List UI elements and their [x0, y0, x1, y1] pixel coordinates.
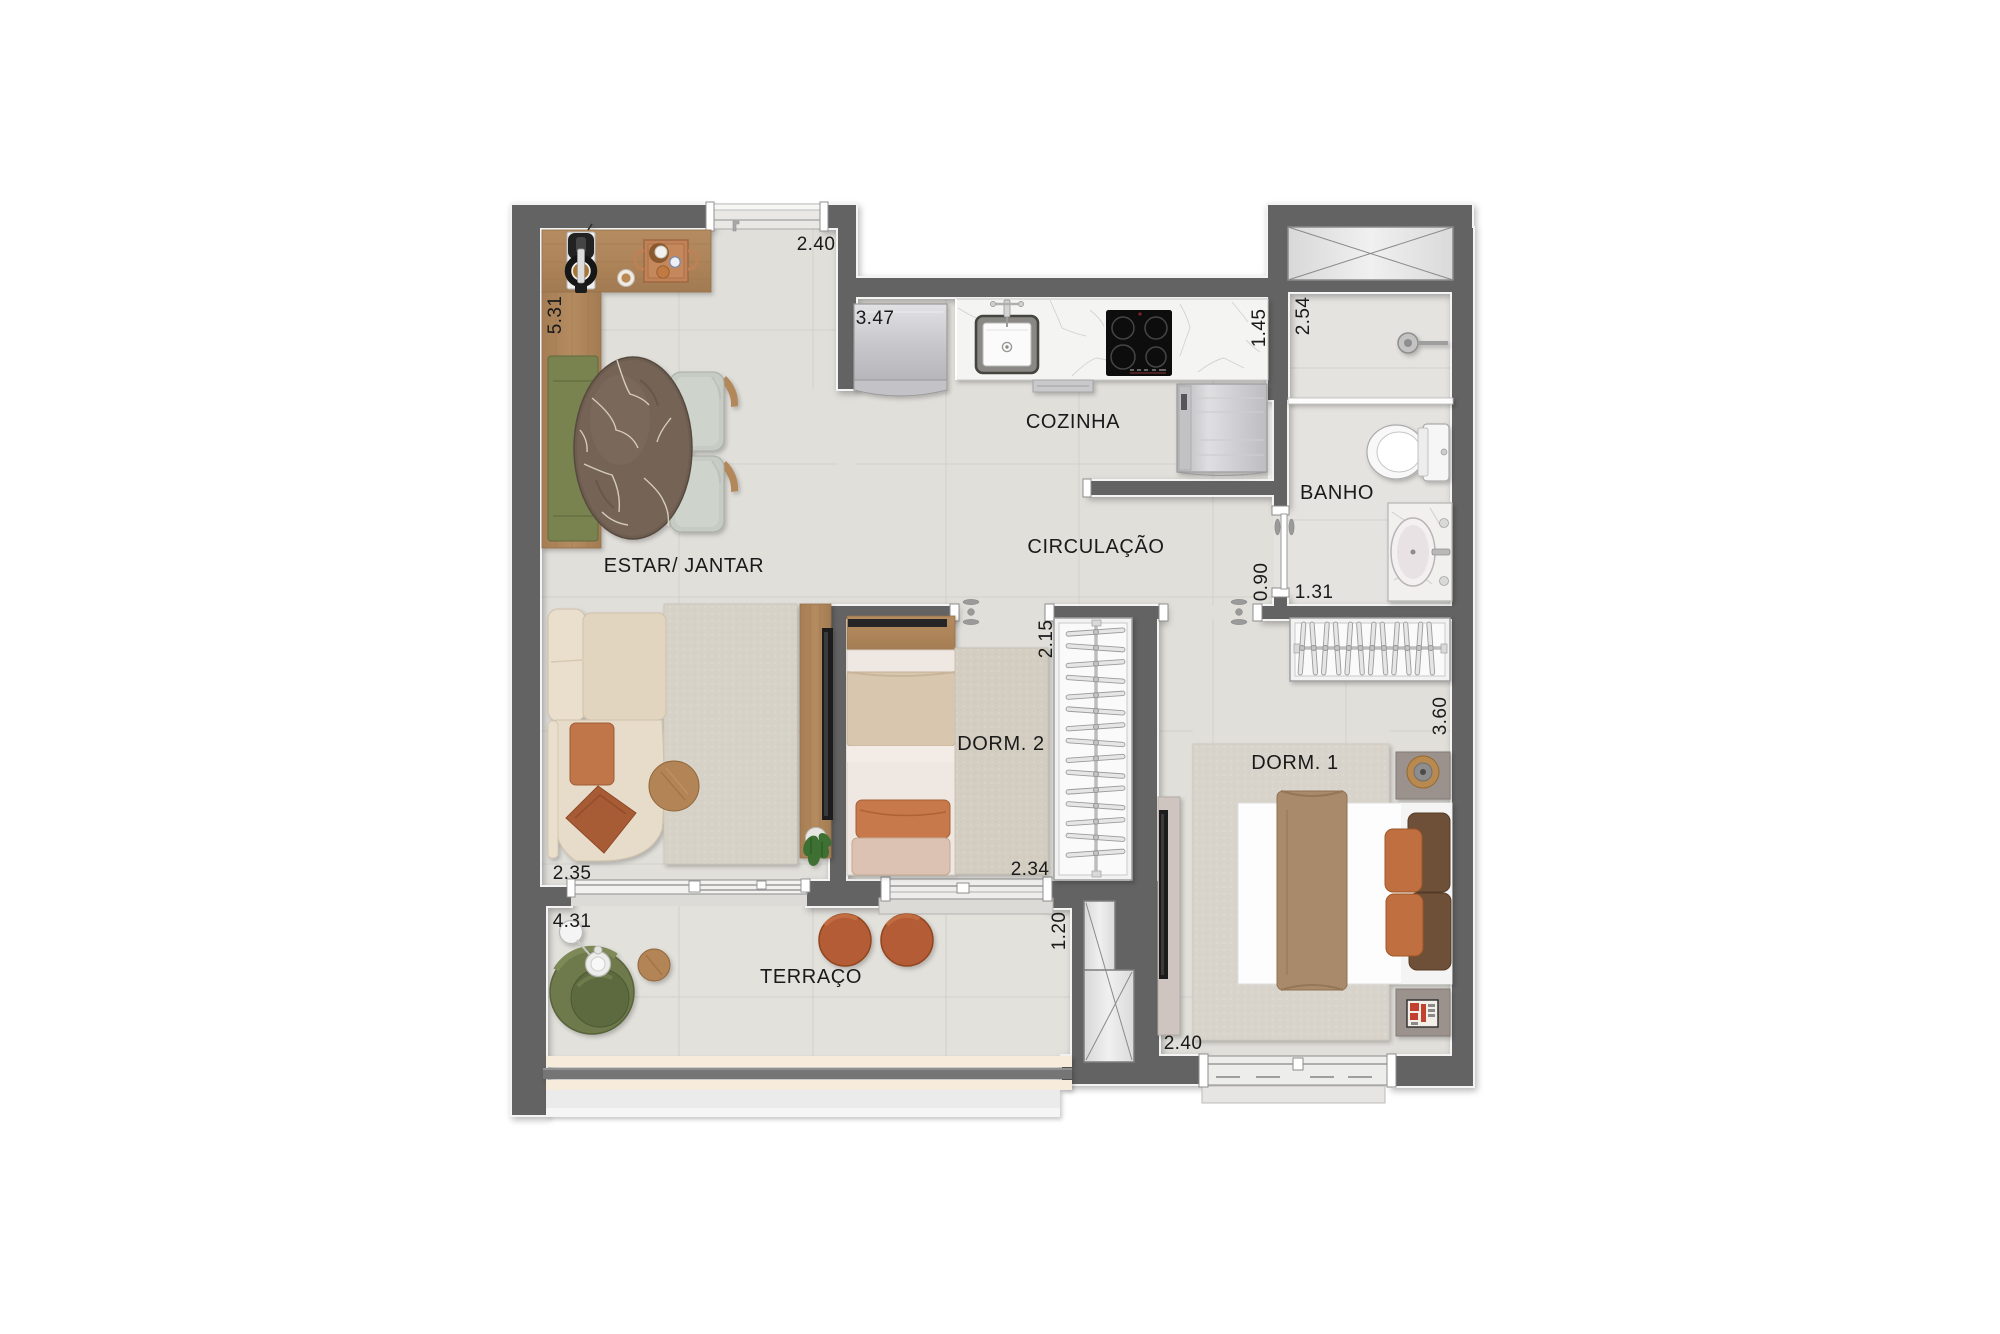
svg-text:2.54: 2.54 — [1293, 297, 1314, 336]
svg-text:1.45: 1.45 — [1249, 309, 1270, 348]
svg-text:2.15: 2.15 — [1036, 620, 1057, 659]
svg-text:4.31: 4.31 — [553, 911, 592, 932]
svg-text:DORM. 2: DORM. 2 — [957, 733, 1045, 755]
svg-text:CIRCULAÇÃO: CIRCULAÇÃO — [1027, 534, 1164, 558]
svg-text:ESTAR/ JANTAR: ESTAR/ JANTAR — [604, 555, 764, 577]
svg-text:1.31: 1.31 — [1295, 582, 1334, 603]
svg-text:2.35: 2.35 — [553, 863, 592, 884]
svg-text:2.40: 2.40 — [797, 234, 836, 255]
svg-text:COZINHA: COZINHA — [1026, 411, 1120, 433]
svg-text:1.20: 1.20 — [1049, 912, 1070, 951]
svg-text:5.31: 5.31 — [545, 296, 566, 335]
svg-text:TERRAÇO: TERRAÇO — [760, 966, 862, 988]
svg-text:DORM. 1: DORM. 1 — [1251, 752, 1339, 774]
svg-text:BANHO: BANHO — [1300, 482, 1374, 504]
svg-text:3.47: 3.47 — [856, 308, 895, 329]
svg-text:2.40: 2.40 — [1164, 1033, 1203, 1054]
svg-text:2.34: 2.34 — [1011, 859, 1050, 880]
svg-text:3.60: 3.60 — [1430, 697, 1451, 736]
svg-text:0.90: 0.90 — [1251, 563, 1272, 602]
